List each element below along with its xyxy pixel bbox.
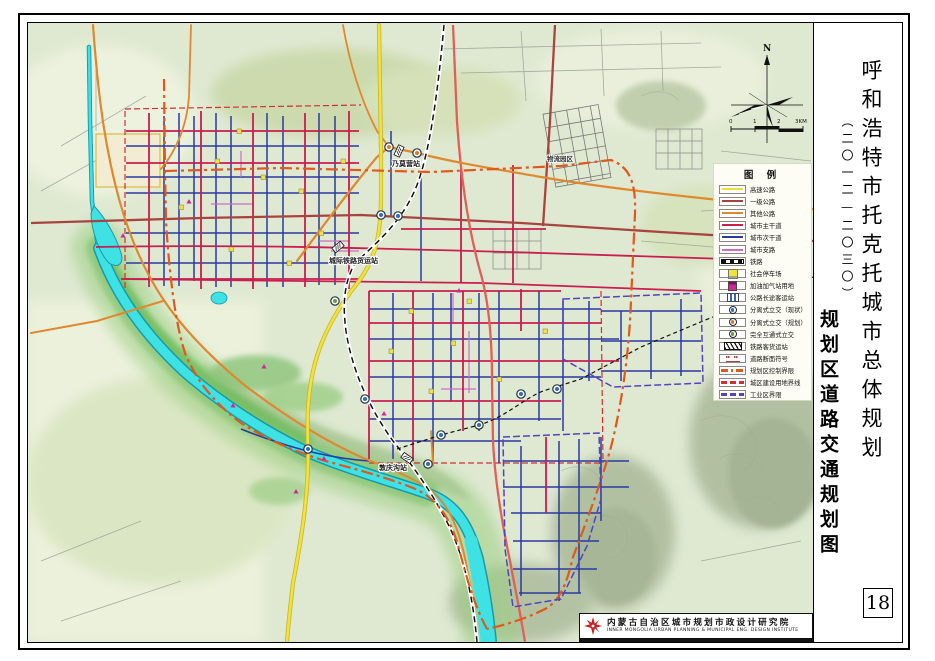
- rail-station-icon: [719, 342, 746, 351]
- expressway-line-icon: [719, 185, 746, 194]
- legend-item: 完全互通式立交: [714, 328, 811, 340]
- label-logistics-park: 物流园区: [547, 154, 574, 163]
- planning-boundary-icon: [719, 366, 746, 375]
- scale-tick-1: 1: [753, 119, 757, 125]
- industrial-boundary-icon: [719, 390, 746, 399]
- legend-item: 其他公路: [714, 207, 811, 219]
- other-road-icon: [719, 209, 746, 218]
- urban-land-boundary-icon: [719, 378, 746, 387]
- legend-item: 城市主干道: [714, 219, 811, 231]
- legend-item: 分离式立交（规划）: [714, 316, 811, 328]
- legend-title: 图 例: [714, 167, 811, 181]
- legend: 图 例 高速公路 一级公路 其他公路 城市主干道 城市次干道 城市支路 铁路 社…: [713, 163, 812, 401]
- legend-item: 城区建设用地界线: [714, 377, 811, 389]
- main-road-icon: [719, 221, 746, 230]
- legend-item: 一级公路: [714, 195, 811, 207]
- map-name: 规划区道路交通规划图: [815, 309, 842, 559]
- north-label: N: [763, 44, 771, 54]
- legend-item: 城市支路: [714, 243, 811, 255]
- secondary-road-icon: [719, 233, 746, 242]
- plan-period: （二〇一二—二〇三〇）: [839, 115, 856, 304]
- legend-item: 高速公路: [714, 183, 811, 195]
- institute-strip: 内蒙古自治区城市规划市政设计研究院 INNER MONGOLIA URBAN P…: [579, 613, 813, 642]
- gas-station-icon: [719, 281, 746, 290]
- legend-item: 工业区界限: [714, 389, 811, 401]
- scale-tick-0: 0: [729, 119, 733, 125]
- sheet-inner-area: 乃莫营站 城际铁路货运站 敦庆沟站 物流园区 N 0 1 2 3KM: [27, 22, 903, 643]
- full-interchange-icon: [719, 330, 746, 339]
- branch-road-icon: [719, 245, 746, 254]
- interchange-existing-icon: [719, 305, 746, 314]
- parking-icon: [719, 269, 746, 278]
- legend-item: 规划区控制界限: [714, 364, 811, 376]
- scale-tick-3: 3KM: [795, 119, 807, 125]
- institute-logo-icon: [583, 616, 603, 636]
- institute-name-cn: 内蒙古自治区城市规划市政设计研究院: [607, 618, 799, 628]
- interchange-planned-icon: [719, 318, 746, 327]
- main-title: 呼和浩特市托克托城市总体规划: [856, 59, 886, 465]
- station-label-freight: 城际铁路货运站: [329, 256, 378, 265]
- first-class-road-icon: [719, 197, 746, 206]
- scale-tick-2: 2: [777, 119, 781, 125]
- legend-item: 城市次干道: [714, 231, 811, 243]
- bus-terminal-icon: [719, 293, 746, 302]
- legend-item: 社会停车场: [714, 268, 811, 280]
- institute-name-en: INNER MONGOLIA URBAN PLANNING & MUNICIPA…: [607, 628, 799, 634]
- legend-item: 公路长途客运站: [714, 292, 811, 304]
- station-label-dunqinggou: 敦庆沟站: [379, 463, 407, 472]
- legend-item: 铁路客货运站: [714, 340, 811, 352]
- title-panel: 呼和浩特市托克托城市总体规划 （二〇一二—二〇三〇） 规划区道路交通规划图 18: [813, 23, 902, 642]
- legend-item: 加油加气站用地: [714, 280, 811, 292]
- legend-item: 道路断面符号: [714, 352, 811, 364]
- road-section-symbol-icon: [719, 354, 746, 363]
- railway-line-icon: [719, 257, 746, 266]
- legend-item: 铁路: [714, 256, 811, 268]
- station-label-naimoying: 乃莫营站: [391, 159, 420, 168]
- plan-sheet: 乃莫营站 城际铁路货运站 敦庆沟站 物流园区 N 0 1 2 3KM: [0, 0, 935, 661]
- page-number: 18: [863, 588, 893, 618]
- map-canvas: 乃莫营站 城际铁路货运站 敦庆沟站 物流园区 N 0 1 2 3KM: [28, 23, 813, 642]
- legend-item: 分离式立交（现状）: [714, 304, 811, 316]
